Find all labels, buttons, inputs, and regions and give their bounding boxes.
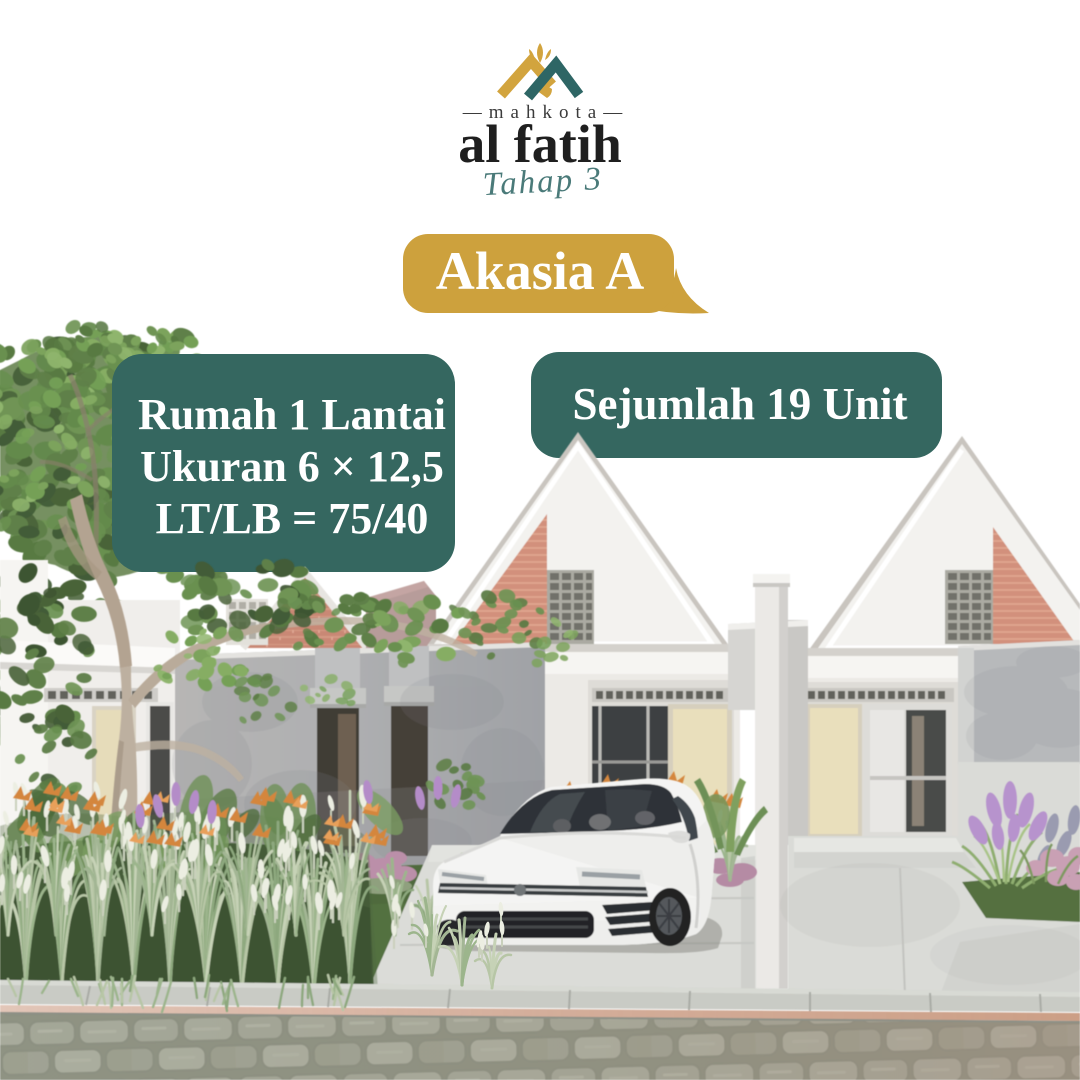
svg-text:Ukuran 6 × 12,5: Ukuran 6 × 12,5: [140, 442, 444, 491]
svg-text:Akasia A: Akasia A: [436, 241, 645, 301]
svg-text:Tahap 3: Tahap 3: [482, 161, 604, 203]
svg-text:LT/LB = 75/40: LT/LB = 75/40: [156, 494, 429, 543]
svg-text:Rumah 1 Lantai: Rumah 1 Lantai: [138, 390, 446, 439]
svg-text:Sejumlah 19 Unit: Sejumlah 19 Unit: [572, 379, 907, 429]
